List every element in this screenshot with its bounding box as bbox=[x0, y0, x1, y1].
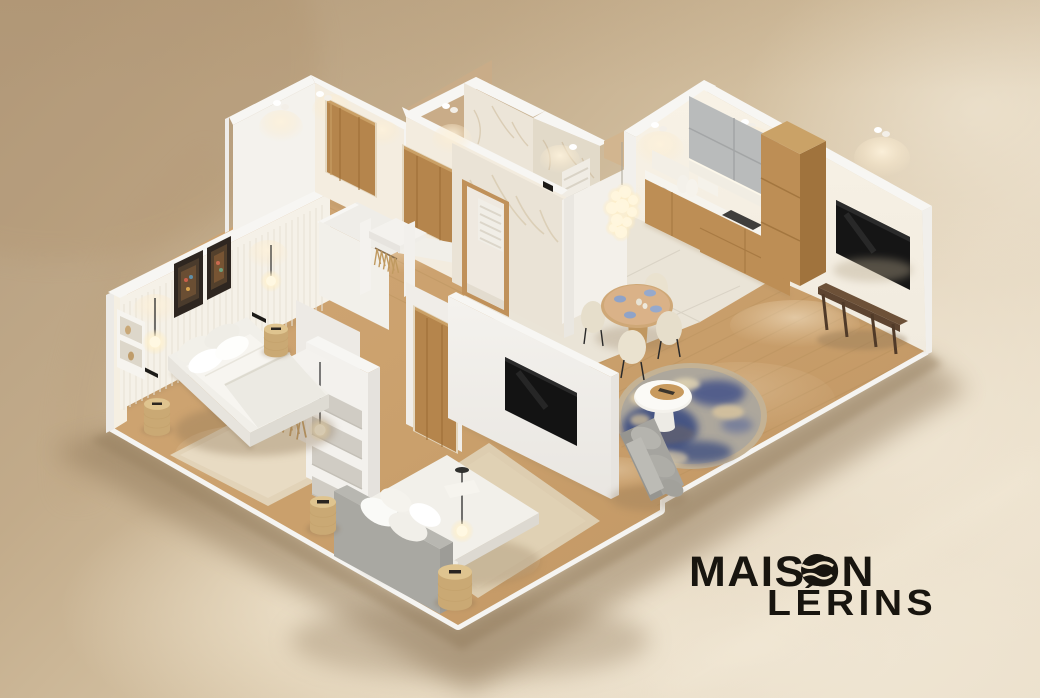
svg-text:LÉRINS: LÉRINS bbox=[767, 582, 937, 623]
